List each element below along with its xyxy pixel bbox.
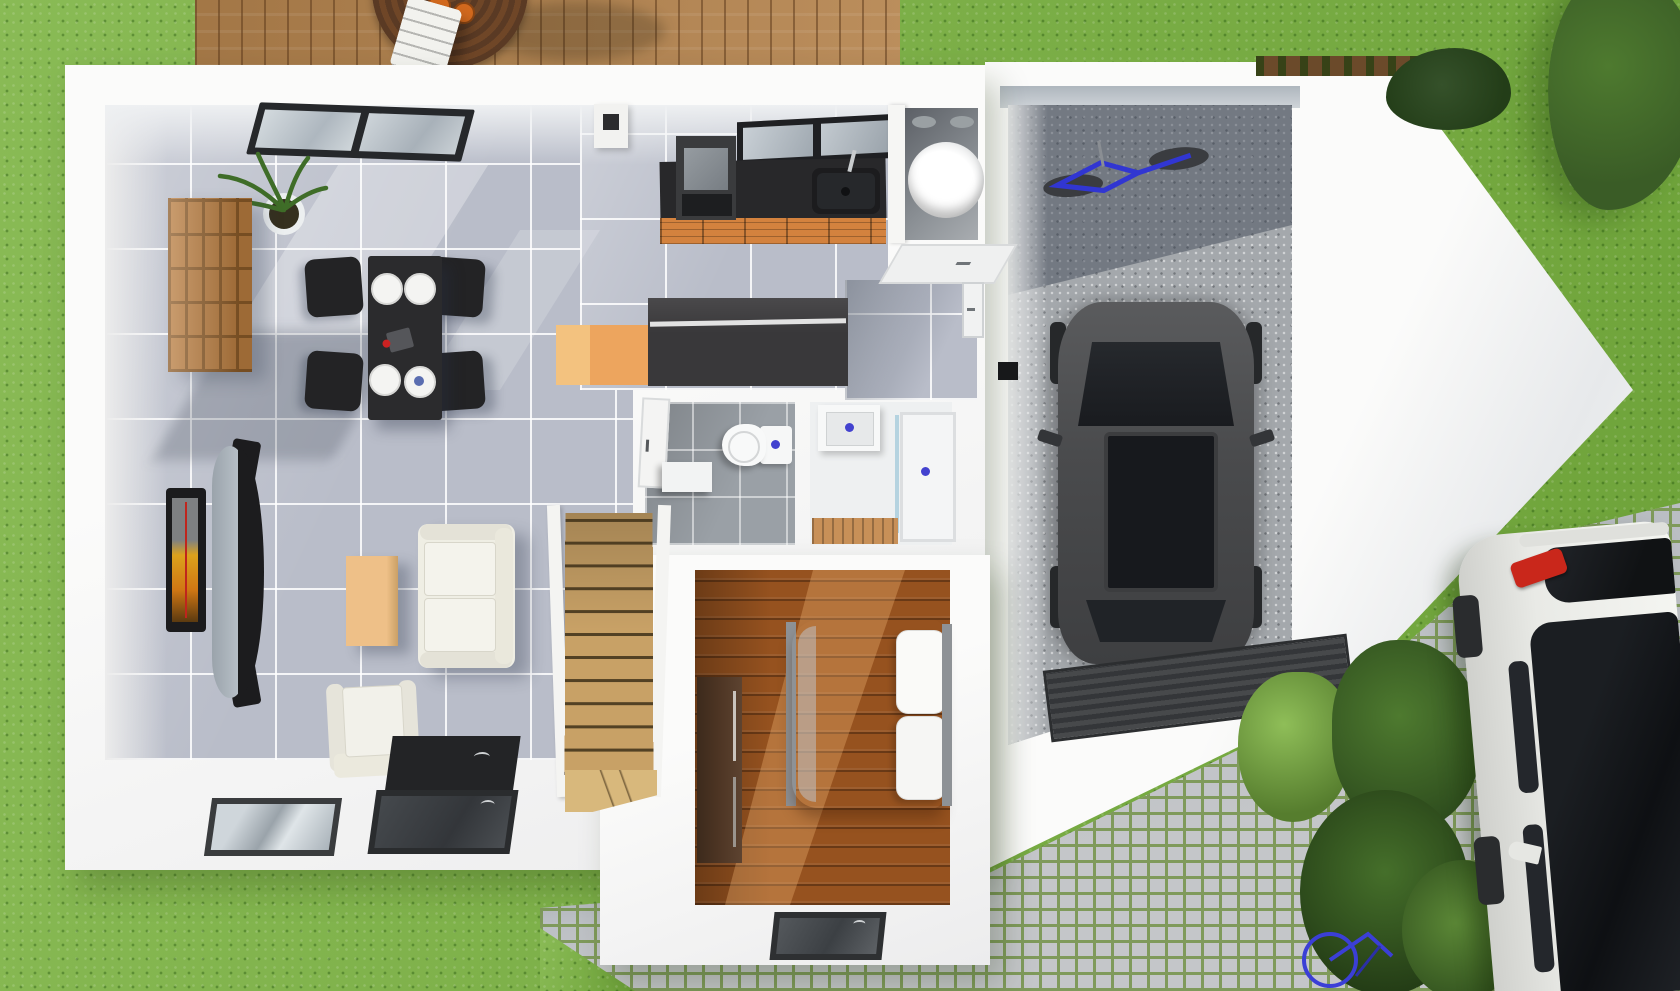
staircase bbox=[565, 513, 654, 775]
utility-door-panel bbox=[878, 244, 1017, 284]
sofa-cushion bbox=[424, 598, 496, 652]
cooktop bbox=[682, 194, 732, 216]
window-glass bbox=[359, 113, 465, 154]
door-handle bbox=[646, 440, 650, 452]
tree-top-right bbox=[1548, 0, 1680, 210]
island-orange-end bbox=[590, 325, 648, 385]
kitchen-sink bbox=[812, 168, 880, 214]
sofa bbox=[418, 524, 515, 668]
tv-screen-line bbox=[185, 502, 187, 618]
utility-partition-wall bbox=[888, 105, 905, 243]
wall-tv bbox=[166, 488, 206, 632]
coffee-table bbox=[346, 556, 398, 646]
bicycle-icon bbox=[1040, 130, 1215, 215]
front-skylight-glass bbox=[204, 798, 342, 856]
sofa-cushion bbox=[424, 542, 496, 596]
deck-terrace bbox=[195, 0, 900, 67]
stove-hood bbox=[684, 148, 728, 190]
dinner-plate bbox=[404, 273, 436, 305]
bedroom-front-window bbox=[769, 912, 886, 960]
kitchen-window-pane bbox=[743, 124, 813, 160]
shower-glass bbox=[895, 415, 899, 533]
dinner-plate bbox=[404, 366, 436, 398]
wardrobe-handle bbox=[733, 691, 736, 761]
toilet-bowl bbox=[722, 424, 766, 466]
dinner-plate bbox=[371, 273, 403, 305]
kitchen-cabinets bbox=[660, 218, 886, 244]
sofa-backrest bbox=[495, 528, 513, 664]
sink-drain bbox=[841, 187, 850, 196]
vanity-sink bbox=[818, 405, 880, 451]
window-glass bbox=[255, 109, 361, 150]
white-car bbox=[1455, 520, 1680, 991]
garage-access-door bbox=[962, 282, 984, 338]
dining-chair bbox=[304, 350, 364, 412]
wooden-bath-mat bbox=[812, 518, 898, 544]
wardrobe bbox=[697, 677, 742, 863]
dining-chair bbox=[304, 256, 364, 318]
island-dark-top bbox=[648, 298, 848, 386]
rug-logo bbox=[473, 752, 490, 762]
console-edge bbox=[238, 448, 264, 696]
wall-duct bbox=[998, 362, 1018, 380]
chimney-column bbox=[594, 104, 628, 148]
floorplan-scene bbox=[0, 0, 1680, 991]
front-skylight-dark bbox=[368, 790, 519, 854]
outdoor-bicycle-icon bbox=[1296, 916, 1406, 991]
ceiling-vent bbox=[912, 116, 936, 128]
door-handle bbox=[967, 308, 975, 311]
bed-duvet-fold bbox=[798, 626, 816, 802]
media-console bbox=[210, 442, 266, 702]
shower-drain-dot bbox=[921, 467, 930, 476]
plate-garnish bbox=[414, 376, 424, 386]
skylight-pane bbox=[211, 804, 335, 850]
shower-tray bbox=[900, 412, 956, 542]
garage-inner-wall-face bbox=[1000, 86, 1300, 108]
white-car-wheel bbox=[1452, 594, 1483, 658]
sink-drain-dot bbox=[845, 423, 854, 432]
pillow bbox=[896, 716, 946, 800]
pillow bbox=[896, 630, 946, 714]
wardrobe-handle bbox=[733, 777, 736, 847]
water-heater-cylinder bbox=[908, 142, 984, 218]
bed-headboard bbox=[942, 624, 952, 806]
tv-screen bbox=[172, 498, 198, 622]
garage-car-windshield bbox=[1078, 342, 1234, 426]
corridor-shadow bbox=[845, 280, 977, 400]
flush-button bbox=[771, 440, 780, 449]
dinner-plate bbox=[369, 364, 401, 396]
ceiling-vent bbox=[950, 116, 974, 128]
garage-car-rear-window bbox=[1086, 600, 1226, 642]
chimney-flue bbox=[603, 114, 619, 130]
toilet-seat-line bbox=[728, 431, 760, 463]
island-light-block bbox=[556, 325, 590, 385]
cube-shelf bbox=[168, 198, 252, 372]
stove-block bbox=[676, 136, 736, 220]
garage-car-roof-glass bbox=[1104, 432, 1218, 592]
wc-bin bbox=[662, 462, 712, 492]
door-handle bbox=[955, 262, 971, 265]
left-wall-face bbox=[105, 105, 167, 760]
